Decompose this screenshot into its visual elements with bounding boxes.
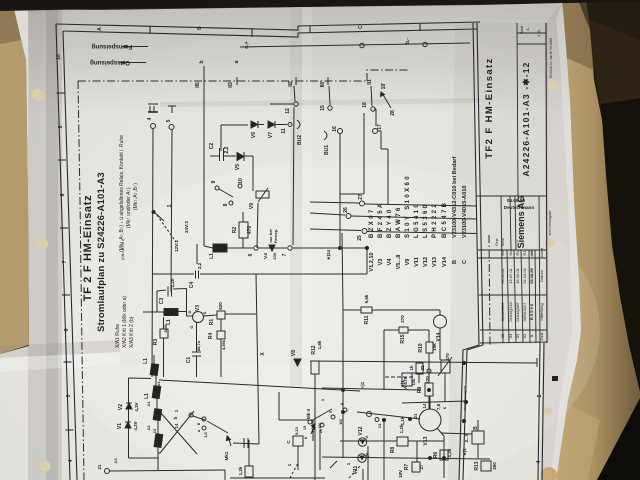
svg-text:470: 470: [247, 226, 253, 235]
svg-text:9: 9: [58, 125, 64, 128]
svg-text:4,59k: 4,59k: [221, 339, 226, 350]
svg-text:BZY40: BZY40: [387, 207, 393, 238]
svg-text:4: 4: [147, 117, 153, 120]
svg-text:24.10.00: 24.10.00: [522, 267, 527, 283]
svg-text:∗)1: ∗)1: [400, 380, 405, 388]
svg-text:V5...8: V5...8: [396, 255, 402, 270]
svg-text:L1: L1: [143, 358, 149, 364]
svg-text:(Mk↓,A↓,B↓): (Mk↓,A↓,B↓): [120, 238, 125, 260]
svg-text:7: 7: [282, 253, 288, 256]
svg-text:16: 16: [332, 126, 338, 132]
svg-text:7: 7: [62, 260, 68, 263]
svg-text:28: 28: [390, 110, 396, 116]
svg-text:II1: II1: [367, 79, 373, 85]
svg-text:Mk II: Mk II: [306, 409, 311, 419]
svg-text:R10: R10: [418, 343, 424, 352]
svg-text:24V:3: 24V:3: [184, 221, 189, 233]
svg-text:∗)2: ∗)2: [311, 427, 315, 434]
svg-text:S10Y S10X60: S10Y S10X60: [405, 174, 411, 238]
svg-text:3: 3: [321, 399, 325, 401]
svg-text:II2: II2: [288, 81, 294, 87]
svg-text:1,2k: 1,2k: [399, 424, 404, 433]
svg-text:Ha: Ha: [500, 250, 505, 256]
svg-text:V14: V14: [436, 332, 442, 341]
svg-text:V23100-V4312-C010 bei Bedarf: V23100-V4312-C010 bei Bedarf: [452, 156, 458, 238]
svg-text:B: B: [473, 426, 479, 430]
svg-text:≈)1: ≈)1: [360, 381, 365, 388]
svg-text:A3: A3: [113, 458, 118, 464]
svg-text:4: 4: [68, 459, 74, 462]
svg-text:R15: R15: [400, 334, 406, 343]
svg-text:14: 14: [174, 423, 179, 429]
svg-text:4,3V: 4,3V: [134, 402, 139, 411]
svg-text:A1: A1: [146, 401, 151, 407]
svg-text:5,6k: 5,6k: [364, 294, 369, 303]
svg-text:11: 11: [281, 128, 287, 134]
svg-text:Deutschmann: Deutschmann: [504, 205, 535, 210]
svg-text:(Mk↑ und/oder A↑): (Mk↑ und/oder A↑): [126, 187, 132, 228]
svg-text:21: 21: [97, 464, 102, 470]
svg-text:R9: R9: [417, 387, 423, 394]
svg-text:360: 360: [492, 462, 497, 470]
svg-text:B: B: [452, 260, 458, 264]
svg-text:05: 05: [500, 333, 505, 338]
svg-text:A2: A2: [146, 425, 151, 431]
svg-text:1,2k: 1,2k: [238, 466, 243, 475]
svg-text:∗)24: ∗)24: [326, 249, 331, 260]
svg-text:09.11.01: 09.11.01: [500, 268, 505, 284]
svg-text:V13: V13: [432, 257, 438, 267]
svg-text:(Mk↑,A↑,B↑): (Mk↑,A↑,B↑): [133, 183, 139, 210]
svg-text:10: 10: [238, 178, 244, 184]
svg-text:V14: V14: [442, 256, 448, 267]
svg-text:22: 22: [420, 365, 425, 371]
svg-text:220: 220: [425, 376, 430, 384]
svg-text:b: b: [173, 416, 178, 419]
svg-text:18': 18': [381, 83, 387, 90]
svg-text:BF245A: BF245A: [378, 201, 384, 238]
svg-text:23V: 23V: [272, 252, 277, 259]
svg-text:R1: R1: [515, 250, 520, 256]
svg-text:TF2 F HM-Einsatz: TF2 F HM-Einsatz: [484, 57, 495, 159]
svg-text:V4: V4: [263, 253, 269, 259]
svg-text:R7: R7: [404, 464, 410, 471]
svg-text:Ha: Ha: [508, 250, 513, 256]
svg-text:5: 5: [66, 394, 72, 397]
svg-text:4: 4: [536, 460, 542, 463]
svg-text:L1: L1: [144, 393, 150, 399]
svg-text:Name: Name: [539, 247, 544, 258]
svg-text:10k: 10k: [432, 343, 437, 351]
svg-text:X/A1 Ruhe: X/A1 Ruhe: [115, 324, 121, 348]
svg-text:V11: V11: [353, 465, 359, 474]
svg-text:arew Vorausgabe: arew Vorausgabe: [548, 210, 552, 235]
svg-text:C: C: [462, 260, 468, 264]
svg-text:V3: V3: [195, 305, 201, 311]
svg-text:C4: C4: [189, 282, 195, 289]
svg-text:(Mk↑,A↑,B↑) ↓ ü abgefallenes: (Mk↑,A↑,B↑) ↓ ü abgefallenes Relais, Kon…: [119, 135, 125, 252]
svg-text:5: 5: [166, 119, 172, 122]
svg-text:19: 19: [303, 426, 307, 430]
svg-text:20: 20: [319, 429, 323, 433]
svg-text:Siemens AG: Siemens AG: [516, 196, 526, 249]
svg-text:Norm: Norm: [501, 238, 505, 246]
svg-text:26: 26: [343, 207, 349, 213]
svg-text:02: 02: [522, 333, 527, 338]
svg-text:27: 27: [358, 194, 364, 200]
svg-text:BU1: BU1: [324, 145, 330, 155]
svg-text:6: 6: [248, 253, 254, 256]
svg-text:II3: II3: [228, 82, 234, 88]
svg-text:12V:2: 12V:2: [174, 240, 179, 252]
svg-text:Zust.: Zust.: [539, 332, 544, 341]
svg-text:1,8k: 1,8k: [317, 340, 322, 349]
svg-text:V1: V1: [117, 423, 123, 429]
svg-text:TF 2 F HM-Einsatz: TF 2 F HM-Einsatz: [82, 195, 94, 302]
svg-text:b,-: b,-: [405, 38, 411, 44]
svg-text:BZX97: BZX97: [369, 207, 375, 238]
svg-text:BU2: BU2: [297, 135, 303, 145]
svg-text:02AA0096: 02AA0096: [500, 302, 505, 321]
svg-text:5: 5: [537, 394, 543, 397]
svg-text:270: 270: [400, 315, 405, 323]
svg-text:1: 1: [167, 204, 173, 207]
svg-text:1 Bl.: 1 Bl.: [536, 29, 541, 37]
svg-text:R8: R8: [390, 447, 396, 454]
svg-text:Fernsp.: Fernsp.: [273, 229, 278, 243]
svg-text:a: a: [234, 60, 240, 63]
svg-text:B: B: [197, 26, 203, 30]
svg-text:V11: V11: [414, 257, 420, 267]
svg-text:820: 820: [218, 302, 223, 310]
svg-text:A24226-A101-A3 -✱-12: A24226-A101-A3 -✱-12: [521, 61, 531, 176]
svg-text:25: 25: [357, 235, 363, 241]
svg-text:8: 8: [223, 203, 229, 206]
svg-text:27: 27: [419, 464, 424, 470]
svg-text:R2: R2: [232, 227, 238, 234]
svg-text:18: 18: [362, 102, 368, 108]
svg-text:C2: C2: [209, 143, 215, 150]
svg-text:13.07.01: 13.07.01: [508, 267, 513, 283]
svg-text:17: 17: [377, 124, 383, 130]
svg-text:arew Vorausgabe: arew Vorausgabe: [463, 385, 467, 410]
svg-text:V12: V12: [423, 257, 429, 267]
svg-text:X/A3 Krit 2 (b): X/A3 Krit 2 (b): [129, 316, 135, 348]
svg-text:X/A2 Krit 1 (Mik oder a): X/A2 Krit 1 (Mik oder a): [122, 296, 128, 348]
svg-text:9: 9: [211, 180, 217, 183]
svg-text:V7: V7: [268, 132, 274, 138]
svg-text:G: G: [189, 325, 194, 328]
svg-text:R4: R4: [208, 333, 214, 340]
svg-text:Stromlaufplan zu S24226-A101-A: Stromlaufplan zu S24226-A101-A3: [96, 172, 107, 332]
svg-text:14: 14: [422, 403, 427, 409]
svg-text:15.05.01: 15.05.01: [515, 267, 520, 283]
svg-text:04: 04: [508, 333, 513, 338]
svg-text:2,2n: 2,2n: [170, 278, 175, 287]
svg-text:Mk1: Mk1: [224, 451, 229, 460]
svg-text:V9: V9: [249, 203, 255, 209]
svg-text:∗)1: ∗)1: [462, 448, 467, 456]
svg-text:05.09.89: 05.09.89: [507, 198, 525, 203]
svg-text:V5: V5: [235, 164, 241, 170]
svg-text:Mitteilung: Mitteilung: [539, 303, 544, 320]
svg-text:V23100-V4015-A010: V23100-V4015-A010: [462, 185, 468, 238]
svg-text:2,2: 2,2: [197, 262, 202, 269]
svg-text:II5: II5: [195, 82, 201, 88]
svg-text:00RA0117: 00RA0117: [522, 302, 527, 321]
svg-text:Datum: Datum: [539, 269, 544, 281]
svg-text:03: 03: [515, 333, 520, 338]
svg-text:10(: 10(: [338, 418, 343, 424]
svg-text:2...6: 2...6: [464, 433, 469, 442]
svg-text:R13: R13: [474, 461, 480, 470]
svg-text:B 5 5 9 6: B 5 5 9 6: [529, 303, 534, 320]
svg-text:13: 13: [377, 423, 382, 428]
svg-text:V2: V2: [118, 404, 124, 410]
svg-text:9,13: 9,13: [294, 426, 299, 435]
svg-text:R6: R6: [433, 452, 439, 459]
svg-text:05.08.89: 05.08.89: [529, 267, 534, 283]
svg-text:b1: b1: [156, 381, 161, 386]
svg-text:V1,2,10: V1,2,10: [369, 252, 375, 271]
svg-text:12k: 12k: [411, 378, 416, 385]
svg-text:Blatt: Blatt: [519, 25, 524, 34]
svg-text:C1: C1: [186, 357, 192, 364]
svg-text:18V: 18V: [398, 470, 403, 478]
svg-text:Wörth & Co. Nachf. 96-0968: Wörth & Co. Nachf. 96-0968: [549, 38, 553, 78]
svg-text:88,7n: 88,7n: [196, 340, 201, 351]
svg-text:R1: R1: [522, 250, 527, 256]
svg-text:470: 470: [445, 353, 450, 361]
svg-text:01AAQ244: 01AAQ244: [508, 301, 513, 321]
svg-text:b: b: [199, 60, 205, 63]
svg-text:V13: V13: [423, 436, 429, 445]
svg-text:5: 5: [329, 411, 333, 413]
svg-text:1,0: 1,0: [203, 431, 208, 437]
svg-text:21: 21: [413, 413, 418, 419]
svg-text:R11: R11: [364, 315, 370, 324]
svg-text:Gepr: Gepr: [495, 237, 499, 245]
svg-text:C: C: [358, 25, 364, 29]
svg-text:13: 13: [152, 428, 157, 433]
svg-text:01AAQ087: 01AAQ087: [515, 301, 520, 321]
svg-text:S: S: [202, 311, 207, 314]
svg-text:V8: V8: [291, 350, 297, 356]
svg-text:12: 12: [285, 108, 291, 114]
svg-text:D: D: [187, 310, 192, 313]
svg-text:15: 15: [320, 105, 326, 111]
svg-text:1,2k: 1,2k: [447, 448, 452, 457]
svg-text:8: 8: [60, 193, 66, 196]
svg-text:R3: R3: [153, 339, 159, 346]
svg-text:V4: V4: [387, 258, 393, 266]
svg-text:V6: V6: [251, 132, 257, 138]
svg-text:820k: 820k: [163, 323, 168, 333]
svg-text:A: A: [97, 27, 103, 31]
svg-text:1k: 1k: [409, 365, 414, 371]
svg-text:19(: 19(: [317, 422, 322, 428]
svg-text:o,+: o,+: [244, 41, 250, 48]
svg-text:deß: deß: [529, 249, 534, 257]
svg-text:V9: V9: [405, 259, 411, 266]
svg-text:4,3V: 4,3V: [133, 421, 138, 430]
svg-text:L1: L1: [209, 253, 215, 259]
svg-text:gn: gn: [364, 452, 369, 457]
svg-text:2,2: 2,2: [224, 146, 230, 153]
svg-text:V3: V3: [378, 259, 384, 266]
svg-text:C3: C3: [159, 298, 165, 305]
svg-text:1,1k: 1,1k: [400, 416, 405, 425]
svg-text:II6': II6': [320, 81, 326, 88]
svg-text:10: 10: [56, 54, 62, 60]
svg-text:V12: V12: [358, 426, 364, 435]
svg-text:BAW76: BAW76: [396, 205, 402, 238]
svg-text:7,8: 7,8: [436, 403, 441, 410]
svg-text:6: 6: [64, 328, 70, 331]
svg-text:R1: R1: [209, 319, 215, 326]
